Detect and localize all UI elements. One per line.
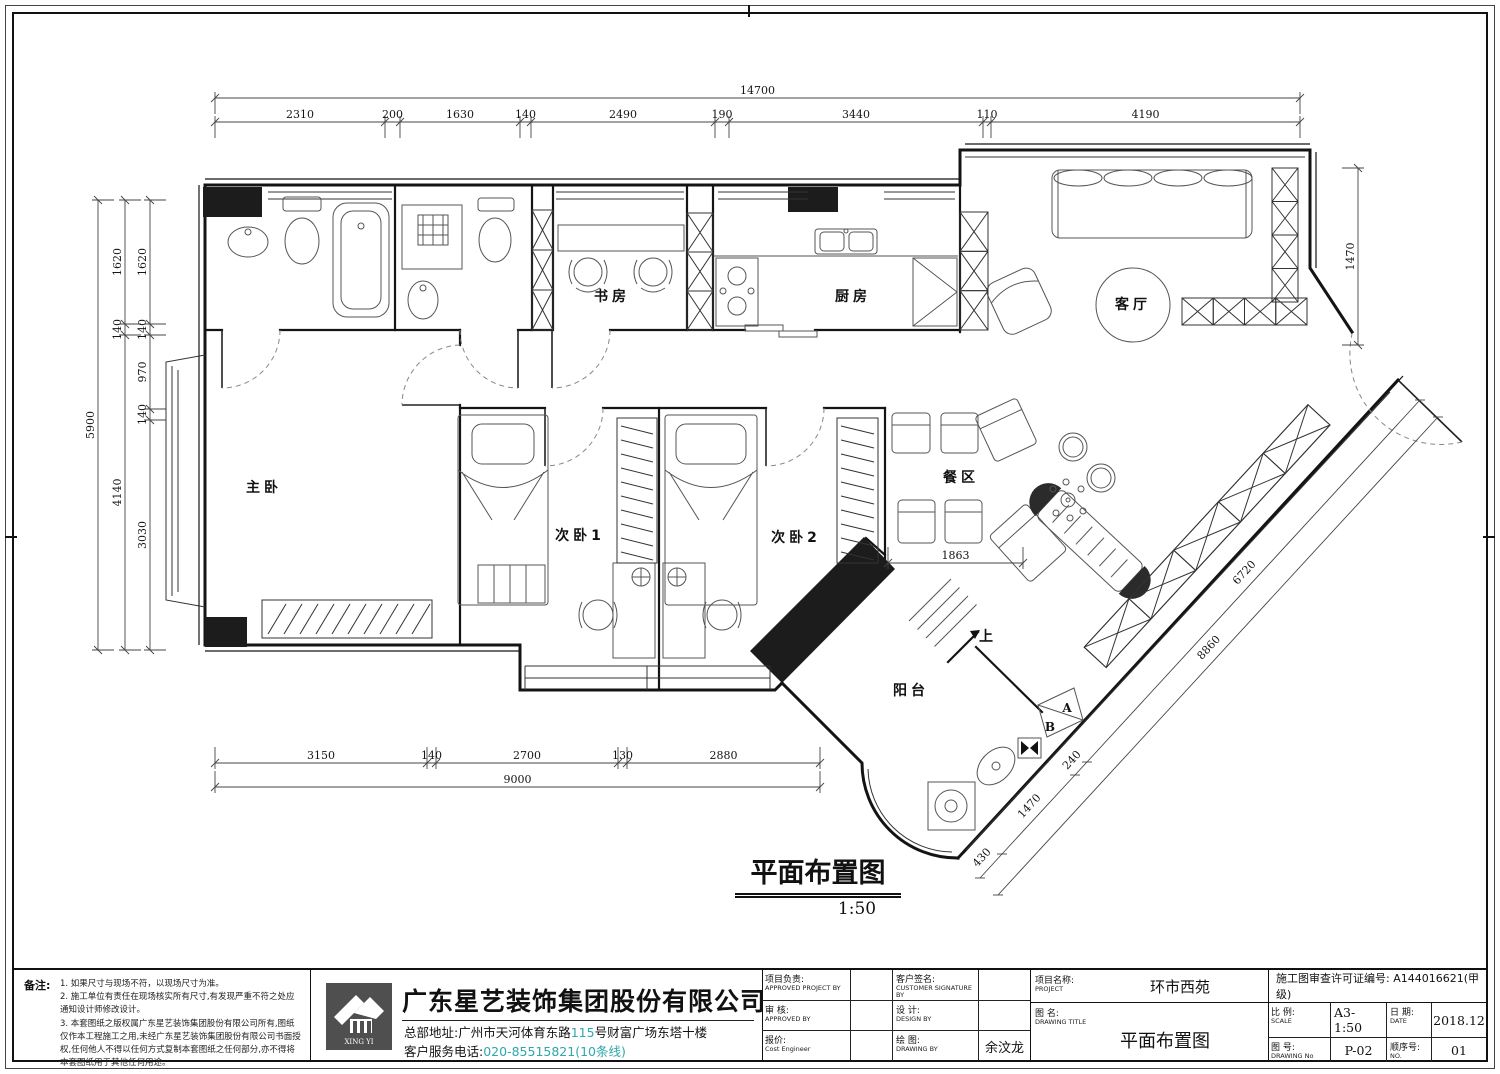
dining-table [1021, 475, 1158, 606]
cell-blank [850, 1001, 892, 1032]
exterior-walls [166, 144, 1403, 858]
approvals-table: 项目负责:APPROVED PROJECT BY 客户签名:CUSTOMER S… [762, 970, 1030, 1061]
sink-icon [228, 227, 268, 257]
dim-label: 140 [136, 319, 149, 340]
dim-label: 1863 [942, 549, 970, 562]
windows [268, 157, 1305, 690]
room-label-bedroom3: 次卧2 [771, 529, 821, 546]
toilet-icon [285, 218, 319, 264]
dim-label: 190 [712, 108, 733, 121]
dim-label: 140 [111, 319, 124, 340]
date-value: 2018.12 [1431, 1003, 1486, 1038]
living-room-furniture [984, 170, 1252, 342]
dim-label: 200 [382, 108, 403, 121]
cabinet-xbox [1084, 405, 1330, 668]
drawing-by-signature: 余汶龙 [978, 1031, 1030, 1061]
dim-label: 140 [515, 108, 536, 121]
room-label-kitchen: 厨房 [835, 288, 871, 305]
armchair [984, 265, 1055, 338]
sink-icon [970, 740, 1022, 792]
seq-no-value: 01 [1431, 1038, 1486, 1062]
project-name: 环市西苑 [1100, 976, 1260, 997]
company-phone: 客户服务电话:020-85515821(10条线) http://www.xin… [404, 1041, 626, 1060]
pillow [676, 424, 746, 464]
drawing-info-panel: 施工图审查许可证编号: A144016621(甲级) 比 例:SCALE A3-… [1268, 970, 1486, 1061]
dim-label: 240 [1060, 748, 1084, 772]
kitchen-fixtures [713, 229, 958, 326]
structural-columns [203, 187, 895, 683]
dim-label: 14700 [740, 84, 775, 97]
dim-label: 4190 [1132, 108, 1160, 121]
desk [558, 225, 684, 251]
fridge-icon [913, 258, 957, 326]
dim-label: 1470 [1015, 791, 1044, 820]
toilet-icon [479, 218, 511, 262]
plan-title: 平面布置图 [735, 851, 901, 898]
cabinet-xbox [687, 213, 713, 330]
pillow [472, 424, 534, 464]
dim-label: 130 [612, 749, 633, 762]
bedroom3-furniture [663, 415, 757, 658]
notes-items: 1. 如果尺寸与现场不符，以现场尺寸为准。 2. 施工单位有责任在现场核实所有尺… [60, 978, 302, 1070]
cell-date-label: 日 期:DATE [1386, 1003, 1431, 1038]
cell-scale-label: 比 例:SCALE [1268, 1003, 1330, 1038]
notes-panel: 备注: 1. 如果尺寸与现场不符，以现场尺寸为准。 2. 施工单位有责任在现场核… [14, 970, 310, 1061]
drawing-sheet: 1470023102001630140249019034401104190315… [0, 0, 1500, 1074]
note-item: 1. 如果尺寸与现场不符，以现场尺寸为准。 [60, 978, 302, 991]
room-label-bedroom2: 次卧1 [555, 527, 605, 544]
scale-value: A3-1:50 [1330, 1003, 1386, 1038]
dimension-chains: 1470023102001630140249019034401104190315… [84, 84, 1443, 895]
company-logo: XING YI [326, 983, 392, 1050]
dim-label: 2310 [286, 108, 314, 121]
address-prefix: 总部地址:广州市天河体育东路 [404, 1025, 571, 1040]
sink-icon [408, 281, 438, 319]
room-labels: 主卧次卧1次卧2书房厨房客厅餐区阳台上AB [246, 288, 1151, 734]
stove-icon [716, 258, 758, 326]
cell-design: 设 计:DESIGN BY [892, 1001, 978, 1032]
address-number: 115 [571, 1025, 595, 1040]
steps [909, 579, 977, 647]
sofa [1052, 170, 1252, 238]
dim-label: 430 [970, 845, 994, 869]
chair [898, 500, 935, 543]
company-address: 总部地址:广州市天河体育东路115号财富广场东塔十楼 [404, 1022, 707, 1041]
cell-review: 审 核:APPROVED BY [762, 1001, 850, 1032]
logo-text: XING YI [344, 1038, 373, 1046]
room-label-balcony: 阳台 [893, 682, 929, 699]
note-item: 3. 本套图纸之版权属广东星艺装饰集团股份有限公司所有,图纸仅作本工程施工之用,… [60, 1018, 302, 1071]
dim-label: 110 [977, 108, 998, 121]
cabinet-xbox [532, 210, 553, 330]
phone-label: 客户服务电话: [404, 1044, 483, 1059]
dim-label: 1630 [446, 108, 474, 121]
notes-label: 备注: [24, 977, 50, 993]
cabinet-xbox [1272, 168, 1298, 302]
up-label: 上 [979, 629, 997, 645]
dim-label: 4140 [111, 479, 124, 507]
dim-label: 2490 [609, 108, 637, 121]
note-item: 2. 施工单位有责任在现场核实所有尺寸,有发现严重不符之处应通知设计师修改设计。 [60, 991, 302, 1017]
cell-blank [978, 1001, 1030, 1032]
cabinet-xbox [960, 212, 988, 330]
dim-label: 1470 [1344, 243, 1357, 271]
dim-label: 1620 [136, 248, 149, 276]
marker-a-label: A [1061, 701, 1072, 715]
marker-b-label: B [1045, 720, 1055, 734]
dim-label: 140 [136, 404, 149, 425]
dim-label: 3030 [136, 521, 149, 549]
drawing-no-value: P-02 [1330, 1038, 1386, 1062]
cell-blank [978, 970, 1030, 1001]
dim-label: 3440 [842, 108, 870, 121]
interior-walls [205, 185, 1042, 712]
company-name: 广东星艺装饰集团股份有限公司 [402, 982, 754, 1021]
address-suffix: 号财富广场东塔十楼 [595, 1025, 708, 1040]
room-label-dining: 餐区 [942, 469, 979, 486]
project-panel: 项目名称:PROJECT 环市西苑 图 名:DRAWING TITLE 平面布置… [1030, 970, 1268, 1061]
chair [945, 500, 982, 543]
balcony-fixtures [909, 579, 1083, 830]
chair [574, 258, 602, 286]
room-label-living: 客厅 [1114, 296, 1151, 313]
dim-label: 9000 [504, 773, 532, 786]
license-number: 施工图审查许可证编号: A144016621(甲级) [1268, 970, 1486, 1003]
dim-label: 8860 [1195, 633, 1224, 662]
dining-furniture [892, 398, 1159, 607]
cell-drawing-no-label: 图 号:DRAWING No [1268, 1038, 1330, 1062]
dim-label: 3150 [307, 749, 335, 762]
dim-label: 2700 [513, 749, 541, 762]
chair [892, 413, 930, 453]
chair [583, 600, 613, 630]
study-furniture [558, 225, 684, 292]
bathroom2-fixtures [402, 198, 514, 319]
dim-label: 1620 [111, 248, 124, 276]
plan-scale: 1:50 [822, 899, 892, 919]
cell-customer-signature: 客户签名:CUSTOMER SIGNATURE BY [892, 970, 978, 1001]
cabinets [262, 168, 1330, 668]
cell-quote: 报价:Cost Engineer [762, 1031, 850, 1061]
dim-label: 970 [136, 362, 149, 383]
company-panel: XING YI 广东星艺装饰集团股份有限公司 总部地址:广州市天河体育东路115… [310, 970, 762, 1061]
cell-project-lead: 项目负责:APPROVED PROJECT BY [762, 970, 850, 1001]
title-block: 备注: 1. 如果尺寸与现场不符，以现场尺寸为准。 2. 施工单位有责任在现场核… [14, 968, 1486, 1061]
room-label-study: 书房 [594, 288, 630, 305]
chair [941, 413, 978, 453]
cell-drawing-by: 绘 图:DRAWING BY [892, 1031, 978, 1061]
doors [222, 325, 1462, 466]
phone-number: 020-85515821(10条线) [483, 1044, 626, 1059]
dim-label: 2880 [710, 749, 738, 762]
cell-seq-no-label: 顺序号:NO. [1386, 1038, 1431, 1062]
wardrobe [617, 418, 657, 563]
cell-blank [850, 970, 892, 1001]
drawing-title-value: 平面布置图 [1070, 1027, 1260, 1053]
dim-label: 6720 [1230, 558, 1259, 587]
room-label-master-bedroom: 主卧 [246, 479, 282, 496]
entry-door-leaf [1398, 380, 1462, 442]
dim-label: 5900 [84, 411, 97, 439]
wardrobe [837, 418, 878, 563]
wardrobe [262, 600, 432, 638]
floor-plan-svg: 1470023102001630140249019034401104190315… [0, 0, 1500, 960]
chair [639, 258, 667, 286]
cell-blank [850, 1031, 892, 1061]
dim-label: 140 [421, 749, 442, 762]
